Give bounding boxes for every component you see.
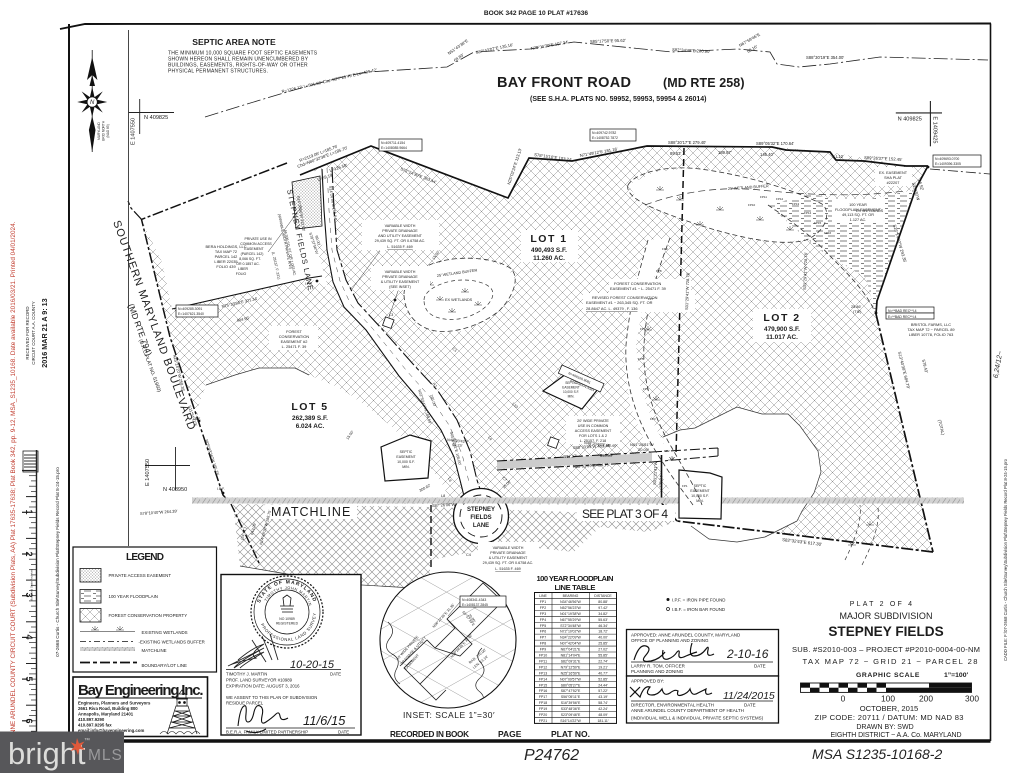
- svg-text:I.P.F.: I.P.F.: [305, 282, 312, 286]
- svg-text:N01°19′38”W: N01°19′38”W: [560, 612, 581, 616]
- svg-text:397.27′: 397.27′: [564, 453, 577, 459]
- svg-text:FP2: FP2: [540, 606, 546, 610]
- svg-text:FP3: FP3: [650, 417, 656, 421]
- svg-text:46.34′: 46.34′: [598, 624, 608, 628]
- svg-text:5: 5: [24, 676, 34, 681]
- svg-text:129.34′: 129.34′: [658, 475, 664, 488]
- svg-text:OR 0.1857 AC.: OR 0.1857 AC.: [236, 262, 260, 266]
- svg-text:FP2: FP2: [664, 449, 670, 453]
- svg-text:FOR LOTS 1 & 2: FOR LOTS 1 & 2: [579, 434, 607, 438]
- svg-text:PRIVATE USE IN: PRIVATE USE IN: [244, 237, 272, 241]
- svg-text:FP9: FP9: [540, 648, 546, 652]
- svg-text:(NAD 83): (NAD 83): [106, 124, 110, 137]
- svg-text:(TIE): (TIE): [853, 310, 862, 314]
- svg-text:18.72′: 18.72′: [598, 630, 608, 634]
- svg-text:N07°42′04”W: N07°42′04”W: [560, 642, 581, 646]
- svg-text:APPROVED: ANNE ARUNDEL COU: APPROVED: ANNE ARUNDEL COUNTY, MARYLAND: [631, 633, 741, 638]
- svg-text:WE ASSENT TO THIS PLAN OF: WE ASSENT TO THIS PLAN OF SUBDIVISION: [226, 695, 317, 700]
- svg-text:SEPTIC: SEPTIC: [400, 450, 413, 454]
- svg-text:I.P.F. = IRON PIPE FOUND: I.P.F. = IRON PIPE FOUND: [672, 598, 725, 603]
- svg-text:2016 MAR 21 A 9: 13: 2016 MAR 21 A 9: 13: [40, 298, 49, 367]
- svg-text:97.42′: 97.42′: [598, 606, 608, 610]
- svg-text:MATCHLINE: MATCHLINE: [142, 648, 167, 653]
- svg-text:RECEIVED FOR RECORD: RECEIVED FOR RECORD: [25, 306, 30, 359]
- svg-text:N34°46′56”W: N34°46′56”W: [560, 600, 581, 604]
- svg-text:N=409711.4154: N=409711.4154: [381, 141, 405, 145]
- svg-text:& UTILITY EASEMENT: & UTILITY EASEMENT: [489, 556, 528, 560]
- svg-text:1”=100′: 1”=100′: [944, 672, 968, 679]
- svg-text:40.77′: 40.77′: [598, 671, 608, 675]
- svg-text:FP18: FP18: [539, 701, 547, 705]
- svg-text:S89°05′32”E 170.64′: S89°05′32”E 170.64′: [756, 141, 794, 146]
- svg-text:410.897.9290: 410.897.9290: [78, 717, 105, 722]
- svg-text:L8: L8: [670, 457, 674, 461]
- svg-text:NO 10989: NO 10989: [279, 617, 295, 621]
- svg-text:SHA PLAT: SHA PLAT: [884, 176, 903, 180]
- svg-text:S56°05′11”E: S56°05′11”E: [561, 695, 581, 699]
- svg-text:S87°47′52”E: S87°47′52”E: [561, 689, 581, 693]
- svg-text:FP21: FP21: [539, 719, 547, 723]
- svg-text:™: ™: [84, 737, 90, 744]
- svg-text:353.55′: 353.55′: [600, 452, 613, 458]
- svg-text:CADD FILE: F:\07-2668 Curti: CADD FILE: F:\07-2668 Curtis - Church Si…: [1003, 458, 1008, 661]
- svg-text:6.024 AC.: 6.024 AC.: [296, 423, 325, 430]
- svg-text:55.85′: 55.85′: [598, 654, 608, 658]
- svg-text:TAX MAP 72 ~ GRID 21: TAX MAP 72 ~ GRID 21 ~ PARCEL 28: [803, 657, 978, 666]
- svg-text:L3: L3: [389, 313, 393, 317]
- svg-text:P24762: P24762: [524, 747, 579, 764]
- svg-text:10,000 S.F.: 10,000 S.F.: [691, 494, 709, 498]
- svg-text:E=1409396.3305: E=1409396.3305: [935, 162, 961, 166]
- svg-text:AND UTILITY EASEMENT: AND UTILITY EASEMENT: [378, 234, 423, 238]
- svg-text:25.86′: 25.86′: [851, 305, 862, 309]
- svg-text:1: 1: [24, 509, 34, 514]
- svg-text:11/24/2015: 11/24/2015: [723, 690, 775, 702]
- svg-text:FIELDS: FIELDS: [470, 515, 491, 521]
- svg-text:L. 25157, F. 218: L. 25157, F. 218: [580, 439, 606, 443]
- svg-text:MSA S1235-10168-2: MSA S1235-10168-2: [812, 746, 942, 762]
- svg-text:N: N: [90, 100, 95, 106]
- svg-text:FP14: FP14: [539, 677, 547, 681]
- svg-text:29,439 SQ. FT. OR 0.6758: 29,439 SQ. FT. OR 0.6758 AC.: [375, 239, 426, 243]
- svg-text:181.11′: 181.11′: [597, 719, 608, 723]
- svg-text:FP10: FP10: [748, 203, 756, 207]
- svg-text:27.02′: 27.02′: [598, 648, 608, 652]
- svg-text:B.E.R.A. FAMILY LIMITED PAR: B.E.R.A. FAMILY LIMITED PARTNERSHIP: [226, 730, 308, 735]
- svg-text:PRIVATE DRAINAGE: PRIVATE DRAINAGE: [382, 229, 418, 233]
- svg-text:OFFICE OF PLANNING AND ZON: OFFICE OF PLANNING AND ZONING: [631, 638, 709, 643]
- svg-text:FOLIO 439: FOLIO 439: [216, 264, 235, 269]
- svg-text:S33°48′36”E: S33°48′36”E: [561, 707, 581, 711]
- svg-text:MATCHLINE: MATCHLINE: [271, 505, 351, 519]
- svg-text:FP4: FP4: [540, 618, 546, 622]
- svg-text:EX. EASEMENT: EX. EASEMENT: [879, 171, 908, 175]
- svg-text:49,113 SQ. FT. OR: 49,113 SQ. FT. OR: [842, 213, 874, 217]
- svg-text:BAY FRONT ROAD: BAY FRONT ROAD: [497, 75, 635, 91]
- svg-text:FP7: FP7: [648, 297, 654, 301]
- svg-text:DISTANCE: DISTANCE: [594, 594, 612, 598]
- svg-text:FP16: FP16: [824, 231, 832, 235]
- svg-text:N34°22′09”W: N34°22′09”W: [560, 636, 581, 640]
- svg-text:490,493 S.F.: 490,493 S.F.: [531, 247, 567, 254]
- svg-text:MAJOR SUBDIVISION: MAJOR SUBDIVISION: [840, 611, 933, 621]
- svg-text:FP9: FP9: [662, 247, 668, 251]
- svg-text:LANE: LANE: [473, 523, 489, 529]
- svg-text:LEGEND: LEGEND: [126, 552, 164, 563]
- svg-text:FP6: FP6: [640, 327, 646, 331]
- svg-text:19.21′: 19.21′: [598, 665, 608, 669]
- svg-text:N67°04′21”E: N67°04′21”E: [561, 648, 581, 652]
- svg-text:LOT 1: LOT 1: [530, 233, 567, 245]
- svg-text:N=409285.3091: N=409285.3091: [178, 307, 202, 311]
- svg-text:FLOODPLAIN EASEMENT: FLOODPLAIN EASEMENT: [835, 208, 882, 212]
- svg-text:S88°30′17”E 279.40′: S88°30′17”E 279.40′: [668, 140, 706, 145]
- svg-text:200: 200: [919, 694, 933, 704]
- svg-text:DATE: DATE: [754, 664, 766, 669]
- svg-text:E=1407621.3540: E=1407621.3540: [178, 312, 204, 316]
- svg-text:FP17: FP17: [539, 695, 547, 699]
- svg-text:100 YEAR FLOODPLAIN: 100 YEAR FLOODPLAIN: [537, 574, 614, 583]
- svg-text:4: 4: [24, 634, 34, 639]
- svg-text:28.8647 AC. L. 49379 , F.: 28.8647 AC. L. 49379 , F. 136: [586, 306, 637, 311]
- svg-text:DATE: DATE: [338, 730, 349, 735]
- svg-text:E 1407550: E 1407550: [131, 118, 137, 145]
- svg-text:S23°09′46”E: S23°09′46”E: [561, 713, 581, 717]
- svg-text:FP12: FP12: [539, 665, 547, 669]
- svg-text:E=1408137.2845: E=1408137.2845: [462, 603, 488, 607]
- svg-text:Maryland State Archives: Maryland State Archives: [30, 568, 34, 601]
- svg-text:(MD RTE 258): (MD RTE 258): [663, 76, 745, 90]
- svg-text:42.24′: 42.24′: [598, 707, 608, 711]
- svg-text:BEARING: BEARING: [563, 594, 579, 598]
- svg-text:GRAPHIC SCALE: GRAPHIC SCALE: [856, 672, 920, 679]
- svg-text:N25°16′50”E: N25°16′50”E: [561, 671, 581, 675]
- svg-text:0: 0: [841, 694, 846, 704]
- svg-text:6: 6: [24, 718, 34, 723]
- svg-text:EX WETLANDS: EX WETLANDS: [445, 298, 473, 302]
- svg-text:INSET: SCALE 1”=30′: INSET: SCALE 1”=30′: [403, 710, 495, 720]
- svg-text:300: 300: [965, 694, 979, 704]
- svg-text:11/6/15: 11/6/15: [303, 713, 346, 728]
- svg-text:VARIABLE WIDTH: VARIABLE WIDTH: [493, 546, 524, 550]
- svg-text:FP13: FP13: [539, 671, 547, 675]
- svg-text:FP19: FP19: [539, 707, 547, 711]
- svg-text:N07°09′57”W: N07°09′57”W: [560, 677, 581, 681]
- svg-text:89.53′: 89.53′: [670, 151, 681, 156]
- svg-text:22.74′: 22.74′: [598, 660, 608, 664]
- svg-text:E 1407550: E 1407550: [145, 459, 151, 486]
- svg-text:FP10: FP10: [539, 654, 547, 658]
- svg-text:07-2668 Curtis - Church Site: 07-2668 Curtis - Church Site\Survey\Subd…: [55, 467, 60, 657]
- svg-text:2661 Riva Road, Building 8: 2661 Riva Road, Building 800: [78, 706, 138, 711]
- svg-text:FP8: FP8: [656, 269, 662, 273]
- svg-text:PLAT 2 OF 4: PLAT 2 OF 4: [850, 601, 914, 608]
- svg-text:Bay Engineering Inc.: Bay Engineering Inc.: [78, 682, 203, 699]
- svg-text:ZIP CODE: 20711 / DATUM:: ZIP CODE: 20711 / DATUM: MD NAD 83: [815, 713, 964, 722]
- svg-text:57.22′: 57.22′: [598, 689, 608, 693]
- svg-text:100 YEAR: 100 YEAR: [849, 203, 867, 207]
- svg-text:FP15: FP15: [814, 221, 822, 225]
- svg-text:(SEE INSET): (SEE INSET): [389, 285, 411, 289]
- svg-text:DATE: DATE: [744, 703, 756, 708]
- svg-text:VARIABLE WIDTH: VARIABLE WIDTH: [385, 270, 416, 274]
- svg-text:EXPIRATION DATE: AUGUST 3,: EXPIRATION DATE: AUGUST 3, 2016: [226, 684, 300, 689]
- svg-text:FP3: FP3: [540, 612, 546, 616]
- svg-text:MIN.: MIN.: [402, 465, 409, 469]
- svg-text:(INDIVIDUAL WELL & INDIVIDU: (INDIVIDUAL WELL & INDIVIDUAL PRIVATE SE…: [631, 716, 764, 721]
- svg-text:N52°56′23”W: N52°56′23”W: [560, 606, 581, 610]
- svg-text:N=409742.9782: N=409742.9782: [592, 131, 616, 135]
- svg-text:FP13: FP13: [792, 202, 800, 206]
- svg-text:FOLIO: FOLIO: [236, 272, 247, 276]
- svg-text:STEPNEY FIELDS: STEPNEY FIELDS: [828, 624, 943, 639]
- svg-text:TIMOTHY J. MARTIN: TIMOTHY J. MARTIN: [226, 672, 267, 677]
- svg-text:ACCESS EASEMENT: ACCESS EASEMENT: [575, 429, 612, 433]
- svg-text:N=**BAD REC**I.4: N=**BAD REC**I.4: [888, 309, 917, 313]
- svg-text:L. 51635 F. 469: L. 51635 F. 469: [387, 245, 412, 249]
- svg-text:I.B.F.: I.B.F.: [217, 487, 225, 491]
- svg-text:55.63′: 55.63′: [598, 618, 608, 622]
- svg-text:EASEMENT: EASEMENT: [562, 386, 580, 390]
- svg-text:L8: L8: [441, 494, 445, 498]
- svg-text:-EXISTING WETLANDS BUFFER: -EXISTING WETLANDS BUFFER: [139, 640, 205, 645]
- svg-text:24.44′: 24.44′: [598, 683, 608, 687]
- svg-text:E=1408085.9664: E=1408085.9664: [381, 146, 407, 150]
- svg-text:1.127 AC.: 1.127 AC.: [850, 218, 867, 222]
- svg-text:PHYSICAL PERMANENT STRUCTURES.: PHYSICAL PERMANENT STRUCTURES.: [168, 69, 268, 75]
- svg-text:FP1: FP1: [540, 600, 546, 604]
- svg-text:SEPTIC: SEPTIC: [565, 381, 577, 385]
- svg-text:RECORDED IN BOOK: RECORDED IN BOOK: [390, 730, 469, 739]
- svg-text:34.82′: 34.82′: [598, 612, 608, 616]
- svg-text:10,000 S.F.: 10,000 S.F.: [397, 460, 415, 464]
- svg-text:USE IN COMMON: USE IN COMMON: [578, 424, 609, 428]
- svg-text:262,389 S.F.: 262,389 S.F.: [292, 415, 328, 422]
- svg-text:2-10-16: 2-10-16: [726, 647, 769, 661]
- svg-text:SEPTIC: SEPTIC: [694, 484, 707, 488]
- svg-text:FP7: FP7: [540, 636, 546, 640]
- svg-text:OCTOBER, 2015: OCTOBER, 2015: [860, 704, 919, 713]
- svg-text:DATE: DATE: [330, 672, 341, 677]
- svg-text:& UTILITY EASEMENT: & UTILITY EASEMENT: [381, 280, 420, 284]
- svg-text:410.897.9295 fax: 410.897.9295 fax: [78, 723, 112, 728]
- svg-text:E=1408752.7872: E=1408752.7872: [592, 136, 618, 140]
- svg-text:C4: C4: [466, 553, 471, 557]
- svg-text:FP16: FP16: [539, 689, 547, 693]
- svg-text:bright: bright: [8, 736, 86, 771]
- svg-text:N=408341.4343: N=408341.4343: [462, 598, 486, 602]
- svg-text:MLS: MLS: [88, 747, 123, 764]
- svg-text:FP8: FP8: [540, 642, 546, 646]
- svg-text:FP20: FP20: [539, 713, 547, 717]
- svg-text:ANNE ARUNDEL COUNTY CIRCUIT CO: ANNE ARUNDEL COUNTY CIRCUIT COURT (Subdi…: [10, 221, 17, 738]
- svg-text:FP11: FP11: [760, 195, 767, 199]
- svg-text:LIBER: LIBER: [238, 267, 249, 271]
- svg-text:EXISTING WETLANDS: EXISTING WETLANDS: [142, 630, 188, 635]
- svg-text:STEPNEY: STEPNEY: [467, 507, 495, 513]
- svg-text:FP11: FP11: [539, 660, 547, 664]
- svg-text:BOOK 342 PAGE 10 PLAT #17636: BOOK 342 PAGE 10 PLAT #17636: [484, 10, 589, 17]
- svg-text:LARRY R. TOM, OFFICER: LARRY R. TOM, OFFICER: [631, 664, 686, 669]
- svg-text:PLANNING AND ZONING: PLANNING AND ZONING: [631, 669, 684, 674]
- svg-text:I.B.F.: I.B.F.: [193, 417, 201, 421]
- svg-text:FP14: FP14: [804, 211, 812, 215]
- svg-text:(PARCEL 142): (PARCEL 142): [241, 252, 264, 256]
- svg-text:#22207: #22207: [887, 181, 900, 185]
- svg-text:REGISTERED: REGISTERED: [276, 622, 299, 626]
- svg-text:FP15: FP15: [539, 683, 547, 687]
- svg-text:L. 51635 F. 469: L. 51635 F. 469: [495, 567, 520, 571]
- svg-text:S82°09′31”E: S82°09′31”E: [561, 660, 581, 664]
- svg-text:EASEMENT: EASEMENT: [396, 455, 416, 459]
- svg-text:EIGHTH DISTRICT ~ A.A. Co.: EIGHTH DISTRICT ~ A.A. Co. MARYLAND: [831, 732, 962, 739]
- svg-text:S16°39′56”E: S16°39′56”E: [561, 701, 581, 705]
- svg-text:LINE: LINE: [539, 594, 547, 598]
- svg-text:FP12: FP12: [776, 197, 784, 201]
- svg-text:GRID NORTH: GRID NORTH: [102, 120, 106, 141]
- svg-text:N=409693.0700: N=409693.0700: [935, 157, 959, 161]
- svg-text:N67°55′29”W: N67°55′29”W: [560, 618, 581, 622]
- svg-text:479,900 S.F.: 479,900 S.F.: [764, 326, 800, 333]
- svg-text:11.017 AC.: 11.017 AC.: [766, 334, 798, 341]
- svg-text:Annapolis, Maryland 21401: Annapolis, Maryland 21401: [78, 712, 134, 717]
- svg-text:Engineers, Planners and Sur: Engineers, Planners and Surveyors: [78, 701, 151, 706]
- svg-text:48.09′: 48.09′: [598, 713, 608, 717]
- svg-text:PROF. LAND SURVEYOR #10989: PROF. LAND SURVEYOR #10989: [226, 678, 293, 683]
- svg-text:RESIDUE PARCEL: RESIDUE PARCEL: [226, 701, 264, 706]
- svg-text:FP1: FP1: [682, 484, 688, 488]
- svg-text:N79°12′50”E: N79°12′50”E: [561, 665, 581, 669]
- svg-text:2: 2: [24, 551, 34, 556]
- svg-text:PLAT NO.: PLAT NO.: [551, 729, 590, 739]
- svg-text:N 409825: N 409825: [144, 115, 168, 121]
- svg-text:11.260 AC.: 11.260 AC.: [533, 255, 565, 262]
- svg-text:DRAWN BY: SWD: DRAWN BY: SWD: [856, 724, 913, 731]
- svg-text:ANNE ARUNDEL COUNTY DEPARTM: ANNE ARUNDEL COUNTY DEPARTMENT OF HEALTH: [631, 708, 744, 713]
- svg-text:52.85′: 52.85′: [598, 677, 608, 681]
- svg-text:BOUNDARY/LOT LINE: BOUNDARY/LOT LINE: [142, 663, 188, 668]
- svg-text:8,066 SQ. FT.: 8,066 SQ. FT.: [239, 257, 261, 261]
- svg-text:PRIVATE DRAINAGE: PRIVATE DRAINAGE: [382, 275, 418, 279]
- svg-text:58.74′: 58.74′: [598, 701, 608, 705]
- svg-text:PRIVATE DRAINAGE: PRIVATE DRAINAGE: [490, 551, 526, 555]
- svg-text:MARYLAND: MARYLAND: [97, 121, 101, 139]
- svg-text:S72°34′48”W: S72°34′48”W: [560, 624, 581, 628]
- svg-text:SUB. #S2010-003 – PROJECT: SUB. #S2010-003 – PROJECT #P2010-0004-00…: [792, 645, 980, 654]
- svg-text:EASEMENT: EASEMENT: [244, 247, 264, 251]
- svg-text:(SEE S.H.A. PLATS NO. 59952, 5: (SEE S.H.A. PLATS NO. 59952, 59953, 5995…: [530, 96, 707, 103]
- svg-text:S16°14′22”W: S16°14′22”W: [560, 719, 581, 723]
- svg-text:LIBER 10778, FOLIO 763: LIBER 10778, FOLIO 763: [909, 332, 954, 337]
- svg-text:25.85′: 25.85′: [598, 642, 608, 646]
- svg-text:100: 100: [881, 694, 895, 704]
- svg-text:N81°14′04”E: N81°14′04”E: [561, 654, 581, 658]
- svg-text:EASEMENT #1 ~ L. 25471 F.: EASEMENT #1 ~ L. 25471 F. 39: [610, 286, 666, 291]
- svg-text:80.88′: 80.88′: [598, 600, 608, 604]
- svg-text:VARIABLE WIDTH: VARIABLE WIDTH: [385, 224, 416, 228]
- svg-text:L12: L12: [836, 154, 844, 159]
- svg-text:EASEMENT: EASEMENT: [690, 489, 710, 493]
- svg-text:100 YEAR FLOODPLAIN: 100 YEAR FLOODPLAIN: [109, 594, 158, 599]
- svg-text:DIRECTOR, ENVIRONMENTAL HEAL: DIRECTOR, ENVIRONMENTAL HEALTH: [631, 703, 714, 708]
- svg-text:20.00′: 20.00′: [638, 447, 649, 452]
- svg-text:S88°30′19”E 354.00′: S88°30′19”E 354.00′: [806, 55, 844, 60]
- svg-text:EASEMENT #1 ~ 263,345 SQ.: EASEMENT #1 ~ 263,345 SQ. FT. OR: [586, 300, 653, 305]
- svg-text:SEPTIC AREA NOTE: SEPTIC AREA NOTE: [192, 37, 276, 47]
- svg-text:FOREST CONSERVATION PROPERTY: FOREST CONSERVATION PROPERTY: [109, 613, 188, 618]
- svg-text:CIRCUIT COURT A.A. COUNTY: CIRCUIT COURT A.A. COUNTY: [31, 301, 36, 364]
- svg-text:S80°05′27”E: S80°05′27”E: [561, 683, 581, 687]
- svg-text:LINE TABLE: LINE TABLE: [555, 583, 596, 592]
- svg-text:146.40′: 146.40′: [760, 152, 774, 157]
- svg-text:E 1409425: E 1409425: [932, 116, 938, 143]
- svg-text:20′ WIDE PRIVATE: 20′ WIDE PRIVATE: [577, 419, 609, 423]
- svg-text:29,439 SQ. FT. OR 0.6758: 29,439 SQ. FT. OR 0.6758 AC.: [483, 561, 534, 565]
- svg-text:APPROVED BY:: APPROVED BY:: [631, 679, 664, 684]
- svg-text:E=**BAD REC**I.4: E=**BAD REC**I.4: [888, 315, 916, 319]
- svg-text:I.B.F. = IRON BAR FOUND: I.B.F. = IRON BAR FOUND: [672, 607, 725, 612]
- svg-text:43.19′: 43.19′: [598, 695, 608, 699]
- svg-text:PAGE: PAGE: [498, 729, 522, 739]
- svg-text:40.00′: 40.00′: [598, 636, 608, 640]
- svg-text:LOT 2: LOT 2: [763, 312, 800, 324]
- svg-text:N 409825: N 409825: [898, 117, 922, 123]
- svg-text:N 408950: N 408950: [163, 487, 187, 493]
- svg-text:10,000 S.F.: 10,000 S.F.: [563, 390, 579, 394]
- svg-text:FP5: FP5: [638, 357, 644, 361]
- svg-text:MIN.: MIN.: [696, 499, 703, 503]
- svg-text:MIN.: MIN.: [568, 395, 575, 399]
- svg-text:FP6: FP6: [540, 630, 546, 634]
- svg-text:N72°10′02”W: N72°10′02”W: [560, 630, 581, 634]
- svg-text:189.87′: 189.87′: [718, 150, 732, 155]
- svg-text:L. 25471 F. 39: L. 25471 F. 39: [282, 344, 307, 349]
- svg-text:FP4: FP4: [643, 387, 649, 391]
- svg-text:FP5: FP5: [540, 624, 546, 628]
- svg-text:LOT 5: LOT 5: [291, 401, 328, 413]
- svg-text:SEE PLAT 3 OF 4: SEE PLAT 3 OF 4: [582, 507, 668, 521]
- svg-text:PRIVATE ACCESS EASEMENT: PRIVATE ACCESS EASEMENT: [109, 573, 172, 578]
